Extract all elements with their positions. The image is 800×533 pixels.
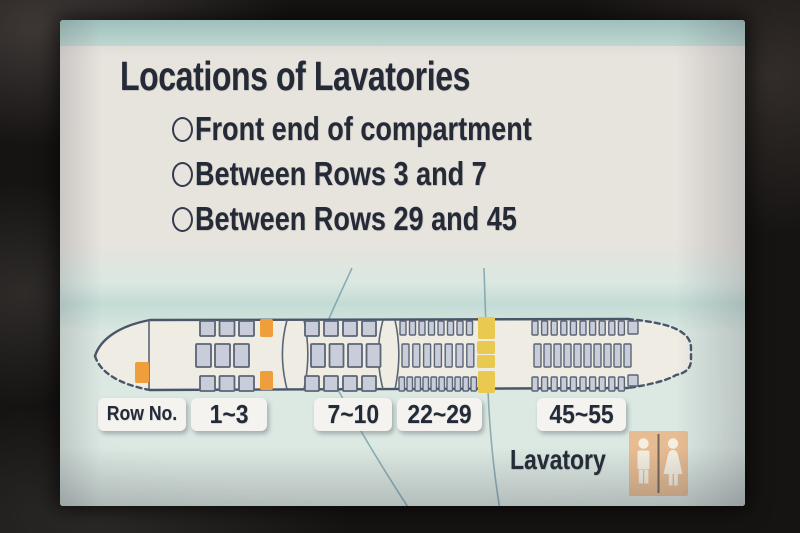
seat-block <box>467 344 474 367</box>
seat-block <box>609 377 615 391</box>
seat-block <box>561 321 567 335</box>
seat-block <box>551 377 557 391</box>
seat-block <box>532 377 538 391</box>
seat-block <box>599 321 605 335</box>
seat-block <box>196 344 211 367</box>
lavatory-marker <box>477 355 495 368</box>
seat-block <box>532 321 538 335</box>
seat-block <box>330 344 344 367</box>
seat-block <box>407 377 413 391</box>
seat-block <box>580 377 586 391</box>
option-list: Front end of compartment Between Rows 3 … <box>172 110 606 245</box>
seat-block <box>429 321 435 335</box>
seat-block <box>618 321 624 335</box>
seat-block <box>311 344 325 367</box>
restroom-icon <box>629 431 688 496</box>
seat-block <box>400 321 406 335</box>
seat-block <box>544 344 551 367</box>
lavatory-marker <box>260 371 273 390</box>
seat-block <box>447 377 453 391</box>
row-label-header: Row No. <box>98 398 186 431</box>
row-label-7-10: 7~10 <box>314 398 392 431</box>
seat-block <box>590 321 596 335</box>
seat-block <box>463 377 469 391</box>
seat-block <box>215 344 230 367</box>
seat-block <box>614 344 621 367</box>
seat-block <box>456 344 463 367</box>
seat-block <box>343 321 357 336</box>
seat-block <box>561 377 567 391</box>
seat-block <box>467 321 473 335</box>
seat-block <box>455 377 461 391</box>
option-label: Between Rows 29 and 45 <box>195 200 517 238</box>
seat-block <box>324 321 338 336</box>
seat-block <box>445 344 452 367</box>
seat-block <box>234 344 249 367</box>
aircraft-diagram <box>88 310 700 402</box>
seat-block <box>438 321 444 335</box>
seat-block <box>419 321 425 335</box>
seat-block <box>239 376 254 391</box>
seat-block <box>423 377 429 391</box>
seat-block <box>239 321 254 336</box>
lavatory-option-front[interactable]: Front end of compartment <box>172 110 606 148</box>
page-title-text: Locations of Lavatories <box>120 53 470 100</box>
row-label-45-55: 45~55 <box>537 398 626 431</box>
seat-block <box>570 321 576 335</box>
lavatory-marker <box>478 371 495 393</box>
row-label-text: 1~3 <box>210 399 249 430</box>
row-label-22-29: 22~29 <box>397 398 482 431</box>
page-title: Locations of Lavatories <box>120 53 569 100</box>
ife-screen: Locations of Lavatories Front end of com… <box>60 20 745 506</box>
seat-block <box>599 377 605 391</box>
lavatory-marker <box>478 317 495 339</box>
row-label-text: 7~10 <box>327 399 379 430</box>
seat-block <box>348 344 362 367</box>
seat-block <box>220 321 235 336</box>
seat-block <box>624 344 631 367</box>
seat-block <box>574 344 581 367</box>
row-label-1-3: 1~3 <box>191 398 267 431</box>
seat-block <box>471 377 477 391</box>
row-label-text: 22~29 <box>407 399 471 430</box>
seat-block <box>200 376 215 391</box>
seat-block <box>305 321 319 336</box>
seat-block <box>457 321 463 335</box>
lavatory-marker <box>477 341 495 354</box>
seat-block <box>305 376 319 391</box>
seat-block <box>220 376 235 391</box>
legend-label-text: Lavatory <box>510 444 606 476</box>
seat-block <box>343 376 357 391</box>
seat-block <box>448 321 454 335</box>
radio-circle-icon <box>172 207 193 232</box>
seat-block <box>542 321 548 335</box>
seat-block <box>415 377 421 391</box>
seat-block <box>362 376 376 391</box>
seat-block <box>534 344 541 367</box>
lavatory-marker <box>260 319 273 337</box>
seat-block <box>590 377 596 391</box>
seat-block <box>410 321 416 335</box>
seat-block <box>628 321 638 334</box>
lavatory-option-rows-3-7[interactable]: Between Rows 3 and 7 <box>172 155 606 193</box>
lavatory-marker <box>135 362 149 383</box>
seat-block <box>399 377 405 391</box>
row-label-text: Row No. <box>107 403 177 426</box>
lavatory-option-rows-29-45[interactable]: Between Rows 29 and 45 <box>172 200 606 238</box>
seat-block <box>542 377 548 391</box>
radio-circle-icon <box>172 117 193 142</box>
seat-block <box>424 344 431 367</box>
seat-block <box>434 344 441 367</box>
seat-block <box>628 375 638 386</box>
seat-block <box>584 344 591 367</box>
seat-block <box>618 377 624 391</box>
option-label: Front end of compartment <box>195 110 532 148</box>
seat-block <box>570 377 576 391</box>
legend-label: Lavatory <box>510 444 627 476</box>
seat-block <box>200 321 215 336</box>
row-label-text: 45~55 <box>549 399 613 430</box>
seat-block <box>367 344 381 367</box>
radio-circle-icon <box>172 162 193 187</box>
header-band <box>60 20 745 46</box>
seat-block <box>609 321 615 335</box>
seat-block <box>402 344 409 367</box>
seat-block <box>362 321 376 336</box>
seat-block <box>324 376 338 391</box>
photo-frame: Locations of Lavatories Front end of com… <box>0 0 800 533</box>
seat-block <box>554 344 561 367</box>
seat-block <box>413 344 420 367</box>
seat-block <box>564 344 571 367</box>
seat-block <box>439 377 445 391</box>
seat-block <box>551 321 557 335</box>
seat-block <box>431 377 437 391</box>
seat-block <box>580 321 586 335</box>
seat-block <box>594 344 601 367</box>
seat-block <box>604 344 611 367</box>
option-label: Between Rows 3 and 7 <box>195 155 487 193</box>
